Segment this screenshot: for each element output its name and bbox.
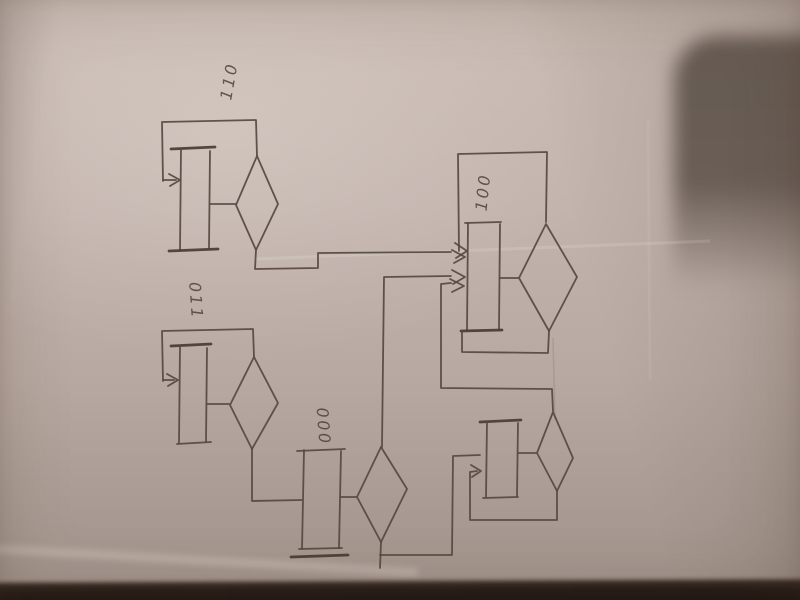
process-box-edge	[461, 330, 502, 331]
process-box-edge	[171, 147, 215, 149]
state-block-100	[450, 152, 577, 353]
decision-diamond	[537, 412, 573, 491]
feedback-loop-line	[458, 152, 547, 251]
process-box-underline	[291, 555, 348, 557]
process-box-edge	[486, 422, 487, 497]
state-label-011: 011	[185, 281, 207, 320]
feedback-loop-bottom-line	[462, 331, 549, 353]
decision-diamond	[230, 357, 278, 449]
crease-line	[256, 241, 710, 259]
process-box-edge	[499, 224, 500, 329]
feedback-loop-line	[162, 329, 254, 381]
process-box-edge	[517, 423, 518, 496]
paper-photo: 110 011 000 100	[0, 0, 800, 600]
state-block-011	[162, 329, 302, 501]
process-box-edge	[339, 451, 341, 548]
paper-creases	[256, 120, 710, 420]
process-box-edge	[177, 442, 211, 444]
process-box-edge	[180, 149, 181, 250]
decision-diamond	[519, 224, 577, 331]
transition-line-011-to-000	[252, 449, 302, 501]
state-block-110	[162, 120, 451, 269]
state-block-unlabeled	[441, 283, 573, 520]
flowchart-sketch	[0, 0, 800, 600]
process-box-edge	[467, 223, 468, 330]
process-box-edge	[169, 249, 218, 251]
table-edge-shadow	[0, 579, 800, 600]
process-box-edge	[465, 222, 501, 223]
process-box-edge	[302, 450, 304, 549]
process-box-edge	[299, 548, 342, 549]
process-box-edge	[206, 348, 207, 442]
process-box-edge	[179, 346, 180, 443]
transition-line-unlabeled-to-100	[441, 283, 553, 411]
process-box-edge	[483, 497, 518, 498]
process-box-edge	[171, 344, 211, 346]
process-box-edge	[480, 420, 521, 422]
state-label-000: 000	[313, 404, 335, 443]
crease-line	[648, 120, 650, 380]
state-label-100: 100	[472, 172, 495, 212]
decision-diamond	[236, 156, 278, 250]
decision-diamond	[357, 447, 407, 542]
feedback-loop-line	[470, 471, 557, 520]
transition-line-110-to-100	[255, 250, 451, 269]
process-box-edge	[209, 151, 210, 248]
